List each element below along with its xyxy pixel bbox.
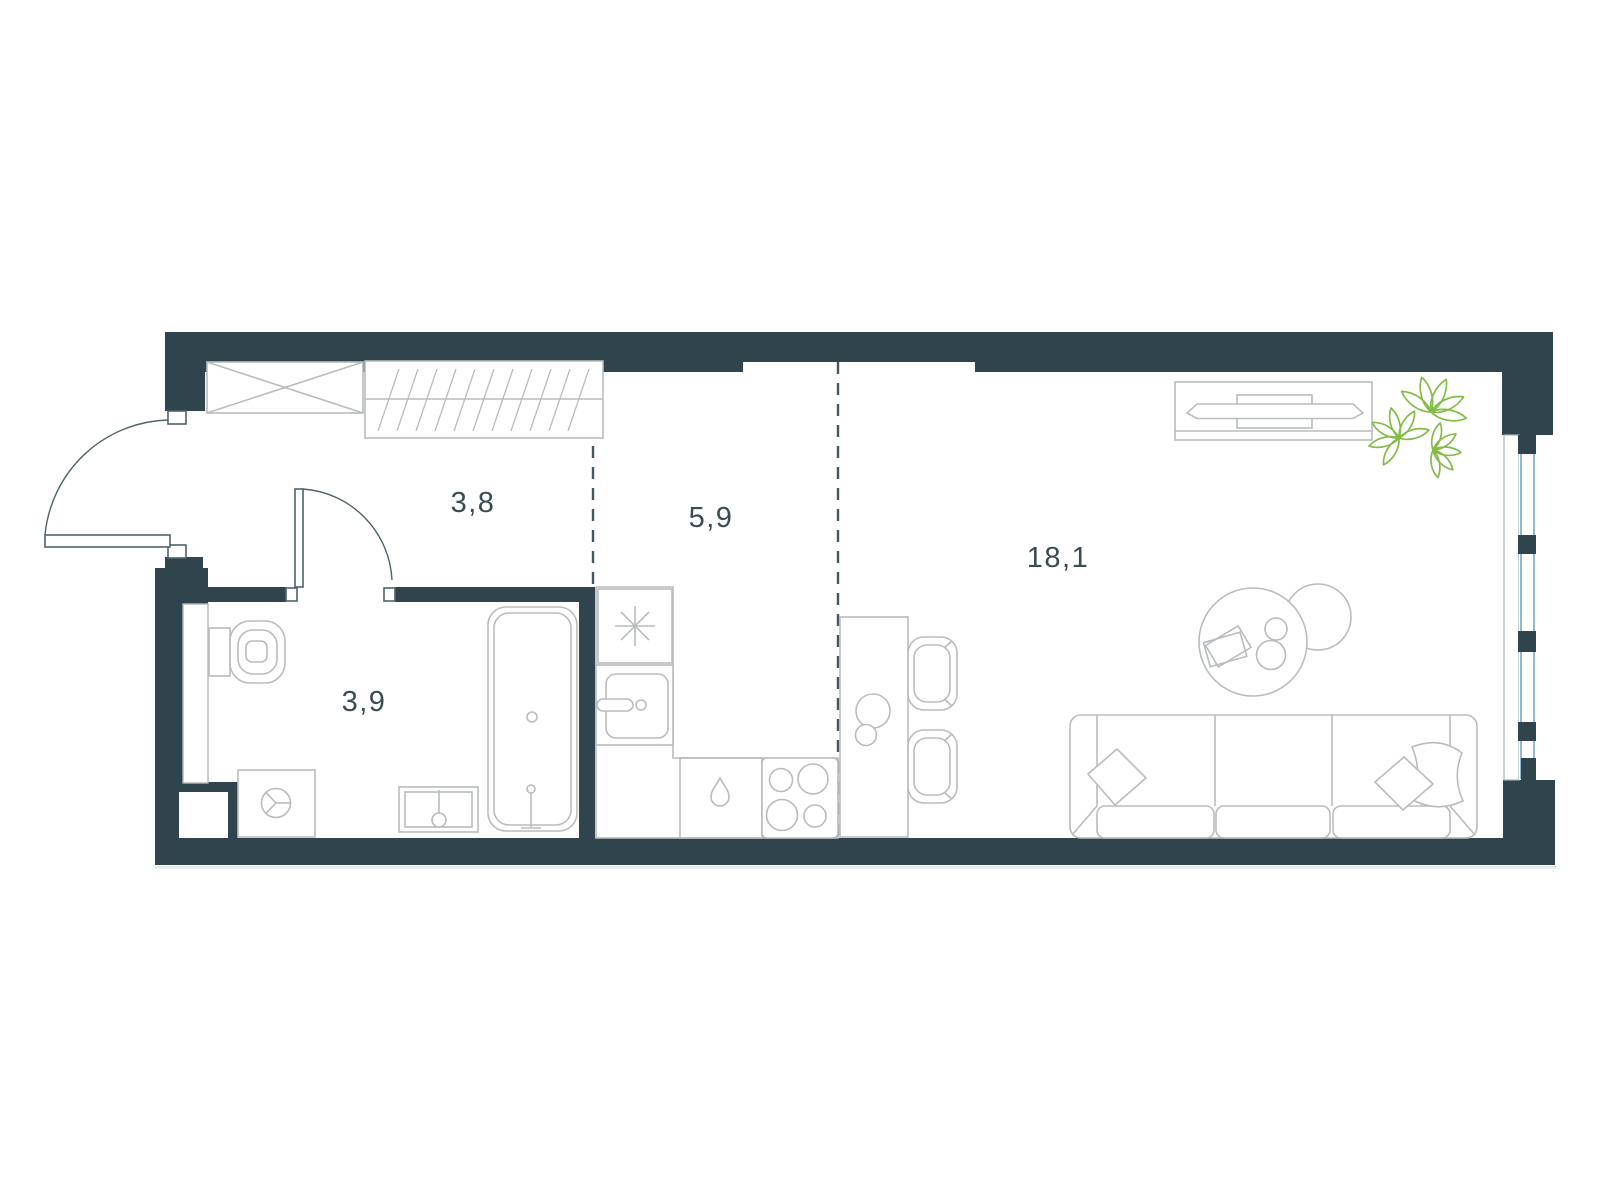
tv-screen <box>1187 404 1363 419</box>
cooktop <box>762 758 838 838</box>
hatched-wardrobe <box>365 361 603 438</box>
plumbing-chase <box>183 604 208 783</box>
cup <box>1257 641 1286 670</box>
bathroom-door-leaf <box>295 489 303 587</box>
room-label-living: 18,1 <box>1027 542 1089 574</box>
toilet-tank <box>209 628 230 676</box>
refrigerator-snowflake-icon <box>615 606 655 646</box>
room-label-bathroom: 3,9 <box>342 686 387 718</box>
bathroom-door <box>286 489 395 601</box>
kitchen-counter <box>596 587 838 838</box>
bathroom-door-jamb <box>286 588 297 601</box>
wall-bottom <box>155 838 1555 865</box>
decanter-glass <box>856 725 877 746</box>
bathroom-door-jamb <box>384 588 395 601</box>
entrance-door-leaf <box>45 535 170 547</box>
wall-notch <box>743 362 975 372</box>
crossed-closet <box>207 362 363 413</box>
bar-chair <box>908 637 957 710</box>
room-label-kitchen: 5,9 <box>689 502 734 534</box>
room-label-hallway: 3,8 <box>451 487 496 519</box>
floor-plan-page: 3,8 5,9 3,9 18,1 <box>0 0 1600 1200</box>
wall-top-right-chunk <box>1502 332 1553 435</box>
slab-shadow-line <box>155 866 1556 869</box>
coffee-table-group <box>1199 584 1351 696</box>
floor-plan: 3,8 5,9 3,9 18,1 <box>0 0 1600 1200</box>
wall-bathroom-top-left <box>203 587 286 602</box>
bathtub-outer <box>488 607 577 831</box>
bathtub <box>488 607 577 831</box>
entrance-door-swing <box>45 420 168 535</box>
bar-area <box>840 617 957 837</box>
bathroom-door-swing <box>303 489 392 580</box>
decanter <box>856 694 890 728</box>
cup <box>1265 618 1287 640</box>
washing-machine <box>238 770 315 837</box>
sofa <box>1070 715 1477 838</box>
window-sill <box>1504 435 1519 780</box>
washbasin <box>399 787 478 832</box>
plant-icon <box>1368 376 1467 478</box>
kitchen-faucet-handle <box>597 699 633 711</box>
washbasin-faucet <box>432 813 446 827</box>
wall-bathroom-top-right <box>395 587 595 602</box>
window <box>1504 435 1536 781</box>
wall-top-left-column <box>165 332 205 411</box>
bar-chair <box>908 730 957 803</box>
shaft-niche <box>179 792 228 838</box>
entrance-door-jamb <box>168 411 186 424</box>
entrance-door <box>45 411 186 558</box>
wall-bottom-right-chunk <box>1503 780 1555 840</box>
tv-console <box>1175 382 1372 440</box>
wall-bathroom-right <box>579 587 595 858</box>
toilet <box>209 621 285 683</box>
